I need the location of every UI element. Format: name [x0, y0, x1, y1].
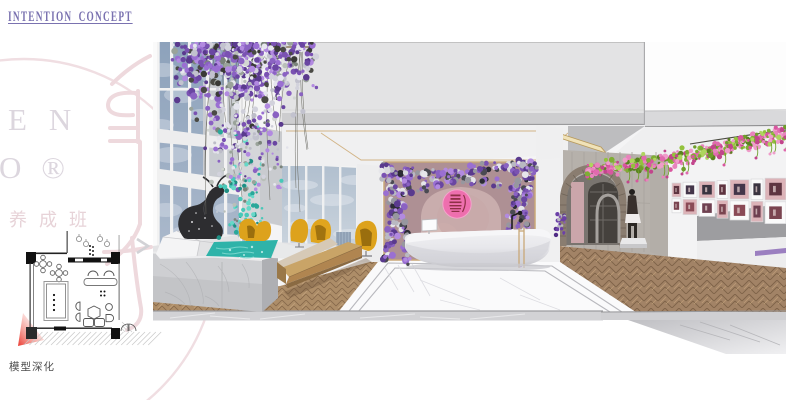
svg-text:养成班: 养成班 — [9, 210, 99, 230]
svg-text:EN: EN — [8, 102, 93, 137]
svg-text:O®: O® — [0, 150, 85, 185]
